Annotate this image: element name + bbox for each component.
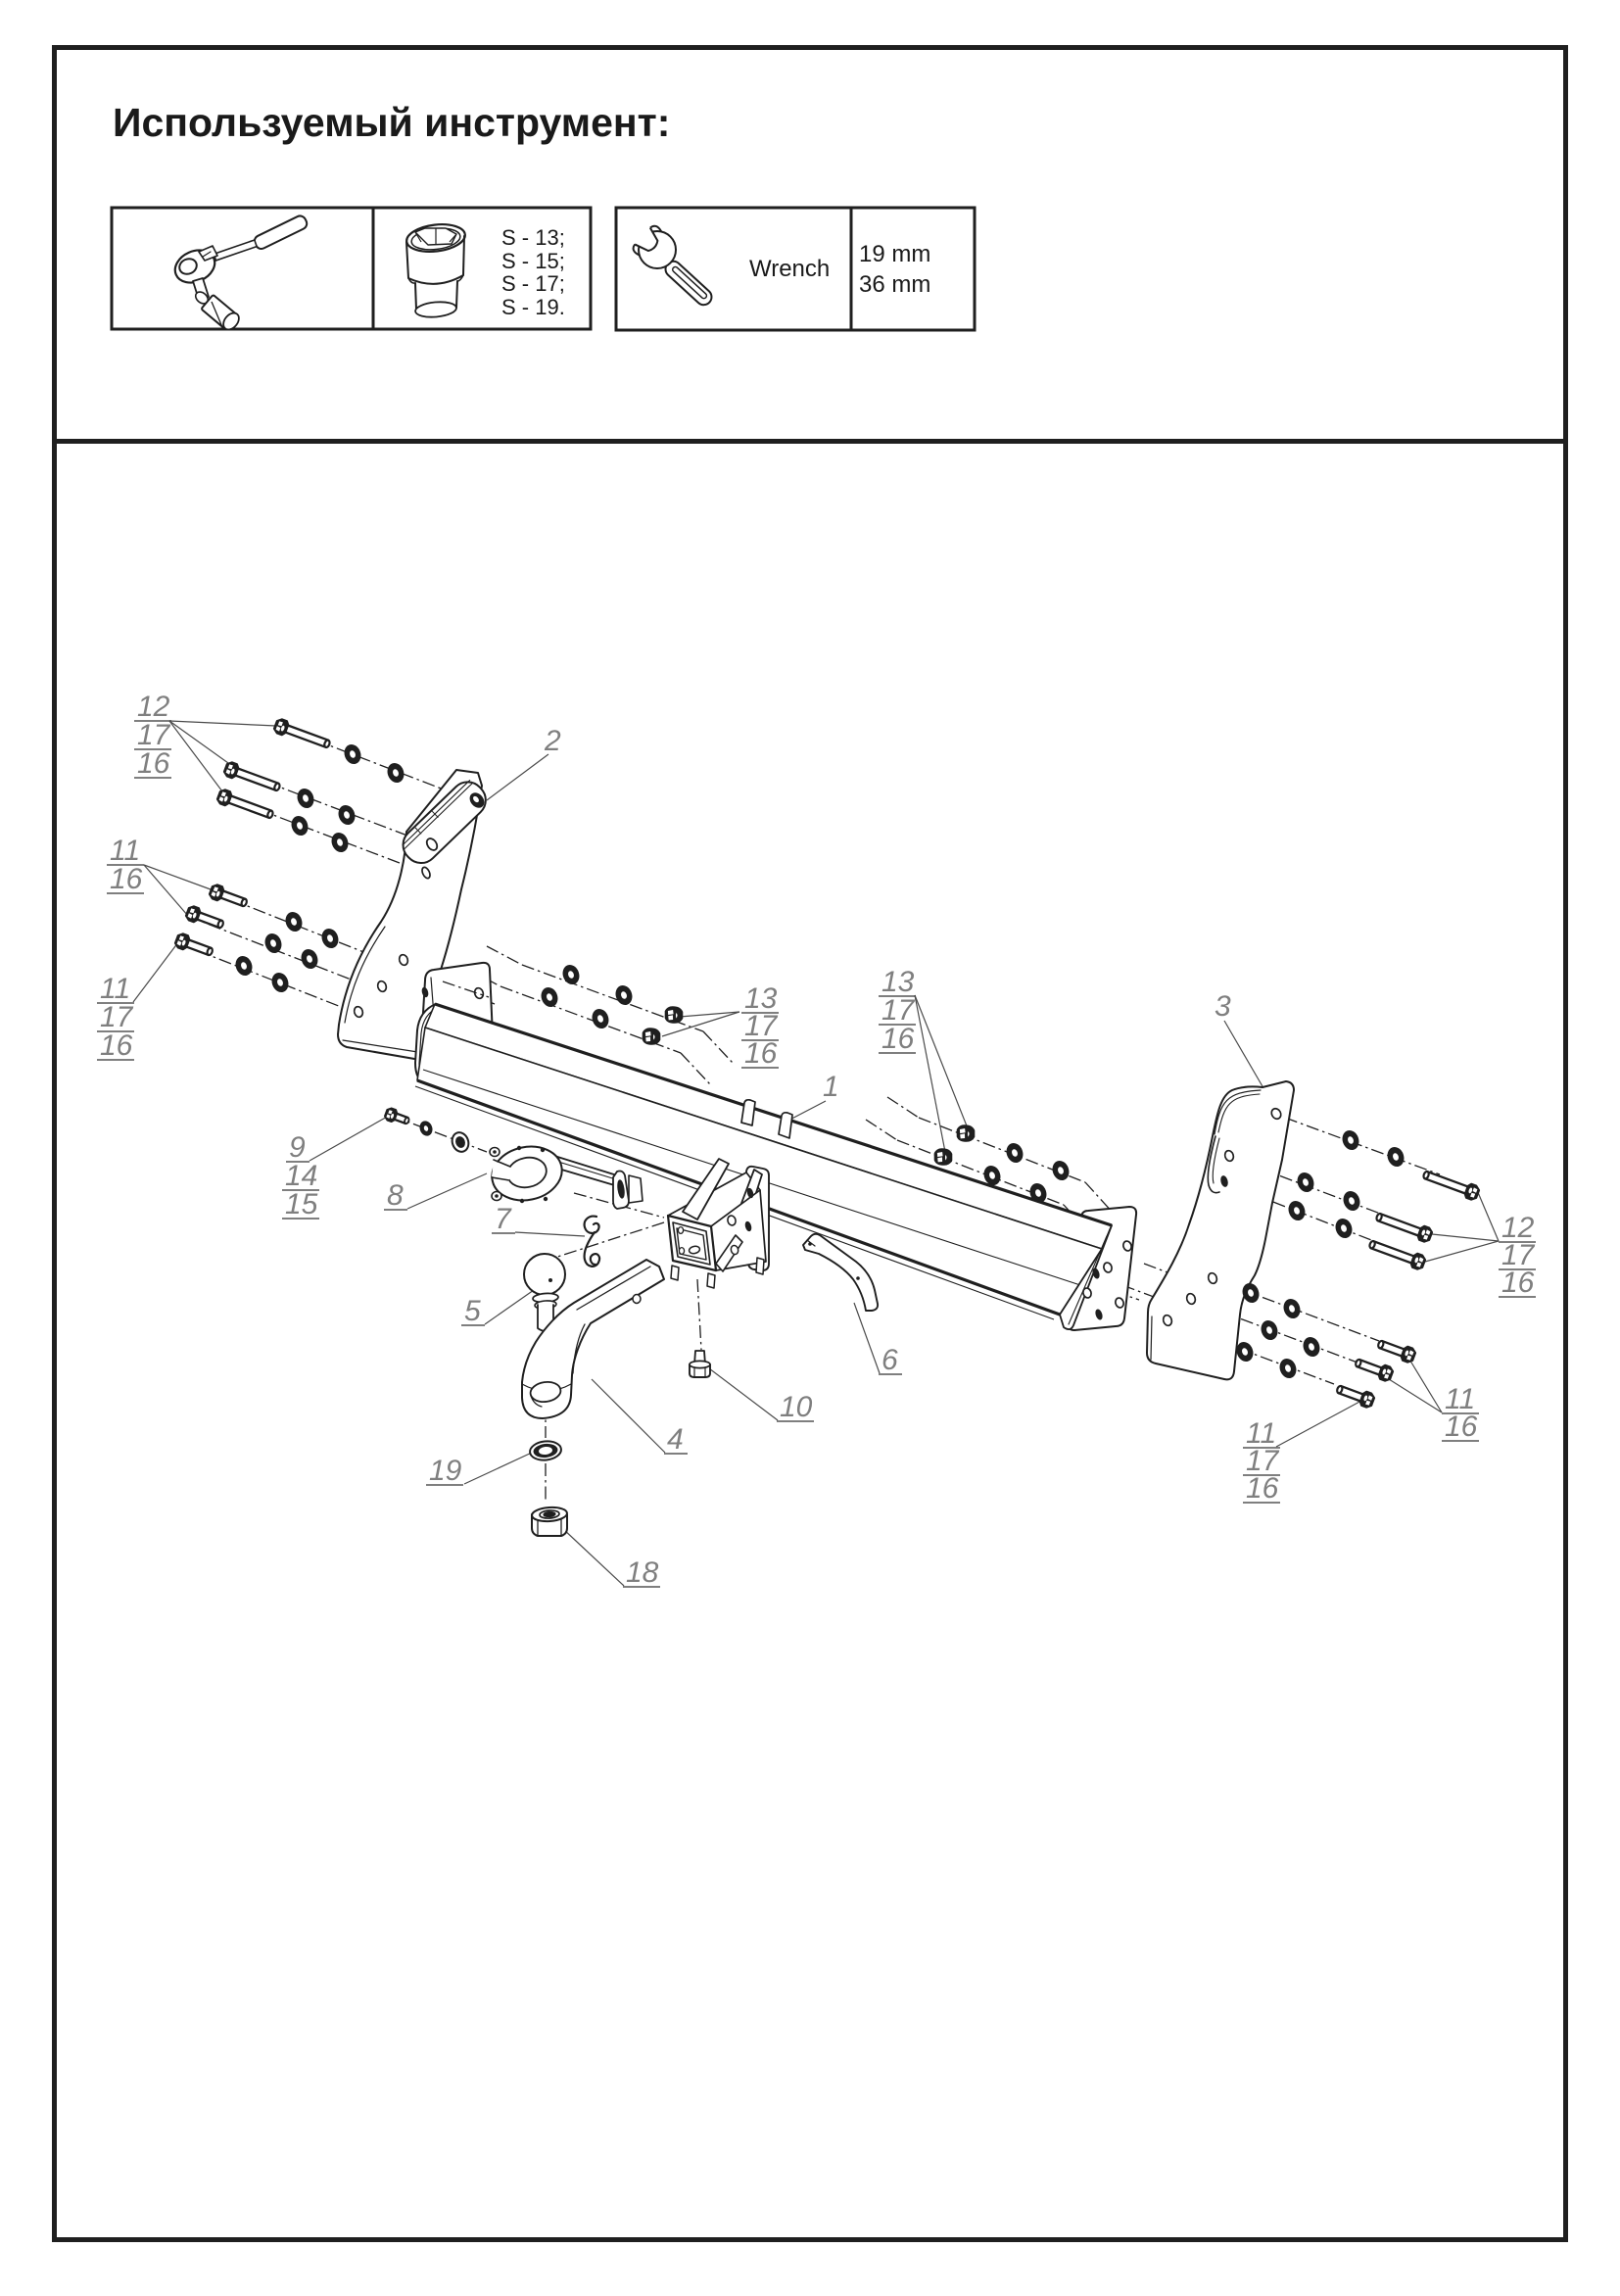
svg-text:2: 2 bbox=[544, 725, 561, 757]
svg-text:36 mm: 36 mm bbox=[859, 271, 930, 298]
svg-text:19: 19 bbox=[429, 1455, 462, 1487]
svg-text:16: 16 bbox=[744, 1037, 778, 1070]
svg-text:S - 15;: S - 15; bbox=[501, 249, 565, 273]
svg-text:8: 8 bbox=[387, 1179, 404, 1212]
svg-text:S - 19.: S - 19. bbox=[501, 295, 565, 319]
svg-text:1: 1 bbox=[823, 1071, 839, 1103]
svg-text:4: 4 bbox=[667, 1423, 684, 1456]
svg-text:7: 7 bbox=[495, 1203, 512, 1235]
svg-text:15: 15 bbox=[285, 1188, 318, 1220]
svg-text:10: 10 bbox=[780, 1391, 813, 1423]
svg-text:16: 16 bbox=[1501, 1267, 1535, 1299]
svg-text:19 mm: 19 mm bbox=[859, 241, 930, 267]
svg-text:18: 18 bbox=[626, 1556, 659, 1589]
svg-text:S - 17;: S - 17; bbox=[501, 271, 565, 296]
svg-text:Wrench: Wrench bbox=[749, 256, 830, 282]
svg-text:16: 16 bbox=[1246, 1472, 1279, 1505]
svg-text:3: 3 bbox=[1215, 990, 1231, 1023]
svg-text:5: 5 bbox=[464, 1295, 481, 1327]
svg-text:16: 16 bbox=[100, 1029, 133, 1062]
svg-text:6: 6 bbox=[881, 1344, 898, 1376]
svg-text:16: 16 bbox=[137, 747, 170, 780]
svg-text:Используемый инструмент:: Используемый инструмент: bbox=[113, 100, 670, 145]
svg-text:16: 16 bbox=[1445, 1411, 1478, 1443]
svg-text:S - 13;: S - 13; bbox=[501, 225, 565, 250]
svg-text:16: 16 bbox=[881, 1023, 915, 1055]
svg-text:16: 16 bbox=[110, 863, 143, 895]
